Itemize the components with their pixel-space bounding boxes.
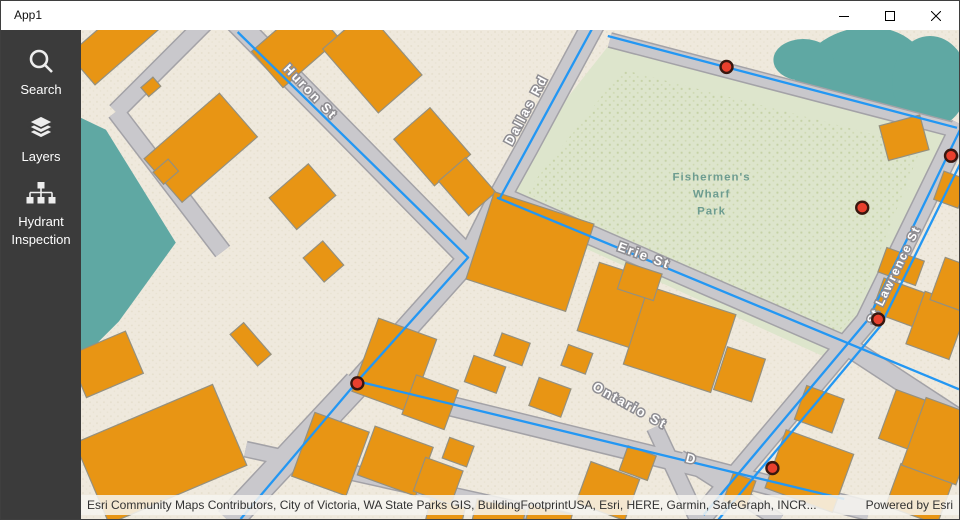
- svg-text:Fishermen's: Fishermen's: [673, 172, 751, 184]
- sidebar-item-hydrant-inspection[interactable]: Hydrant Inspection: [1, 181, 81, 249]
- map-canvas: Huron St Dallas Rd Erie St Ontario St St…: [81, 30, 959, 519]
- minimize-icon: [839, 11, 849, 21]
- svg-text:Park: Park: [697, 206, 726, 218]
- attribution-bar: Esri Community Maps Contributors, City o…: [81, 495, 959, 515]
- title-bar: App1: [1, 1, 959, 30]
- map-view[interactable]: Huron St Dallas Rd Erie St Ontario St St…: [81, 30, 959, 519]
- sidebar-item-layers[interactable]: Layers: [1, 114, 81, 166]
- attribution-text: Esri Community Maps Contributors, City o…: [87, 498, 854, 512]
- window-controls: [821, 1, 959, 30]
- hierarchy-icon: [26, 181, 56, 207]
- svg-text:Wharf: Wharf: [693, 189, 730, 201]
- hydrant-marker[interactable]: [856, 202, 868, 214]
- close-icon: [931, 11, 941, 21]
- search-icon: [27, 47, 55, 75]
- layers-icon: [26, 114, 56, 142]
- sidebar-item-search[interactable]: Search: [1, 47, 81, 99]
- minimize-button[interactable]: [821, 1, 867, 30]
- app-window: App1 Search: [0, 0, 960, 520]
- maximize-icon: [885, 11, 895, 21]
- water-body: [773, 39, 833, 81]
- sidebar-item-label: Search: [20, 81, 61, 99]
- sidebar-item-label: Layers: [21, 148, 60, 166]
- close-button[interactable]: [913, 1, 959, 30]
- hydrant-marker[interactable]: [766, 462, 778, 474]
- hydrant-marker[interactable]: [721, 61, 733, 73]
- window-title: App1: [14, 1, 42, 30]
- hydrant-marker[interactable]: [351, 377, 363, 389]
- sidebar: Search Layers Hydrant: [1, 30, 81, 519]
- sidebar-item-label: Hydrant Inspection: [11, 213, 70, 249]
- powered-by-esri: Powered by Esri: [866, 498, 953, 512]
- hydrant-marker[interactable]: [872, 313, 884, 325]
- maximize-button[interactable]: [867, 1, 913, 30]
- hydrant-marker[interactable]: [945, 150, 957, 162]
